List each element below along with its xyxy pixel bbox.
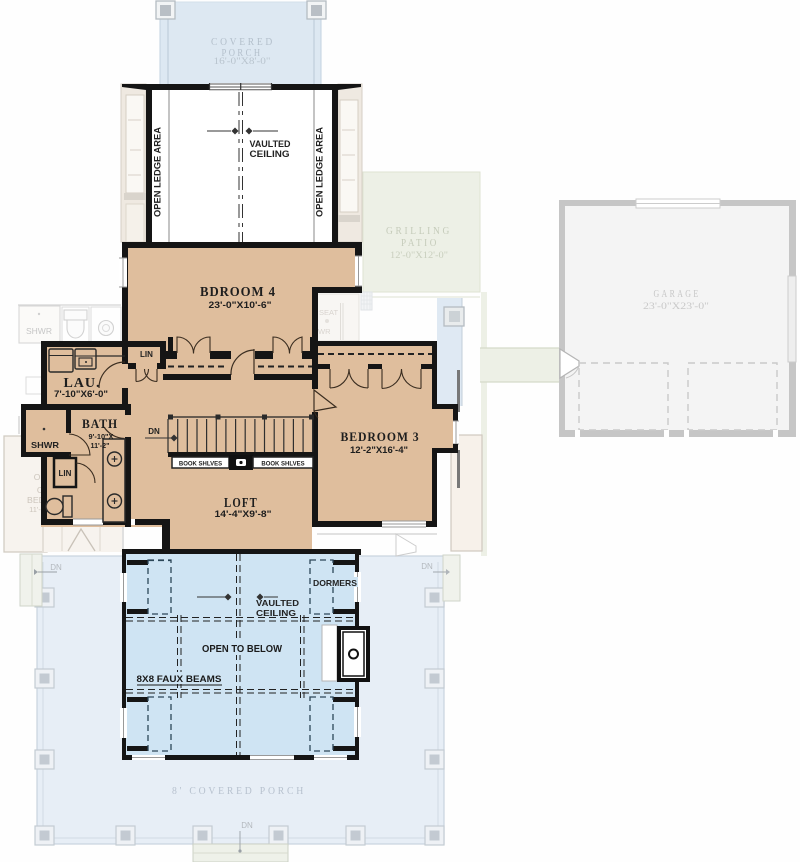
- svg-text:OPEN TO BELOW: OPEN TO BELOW: [202, 644, 283, 655]
- svg-text:VAULTED: VAULTED: [256, 598, 299, 608]
- svg-text:SHWR: SHWR: [26, 326, 52, 336]
- svg-text:14'-4"X9'-8": 14'-4"X9'-8": [215, 509, 272, 519]
- svg-text:DN: DN: [50, 563, 62, 572]
- svg-text:PATIO: PATIO: [401, 238, 439, 249]
- svg-text:23'-0"X10'-6": 23'-0"X10'-6": [209, 300, 272, 310]
- svg-text:CEILING: CEILING: [256, 608, 296, 618]
- svg-text:LIN: LIN: [59, 469, 72, 478]
- svg-text:WR: WR: [318, 327, 331, 336]
- svg-text:12'-0"X12'-0": 12'-0"X12'-0": [390, 250, 448, 260]
- svg-text:DN: DN: [148, 427, 160, 436]
- svg-text:SHWR: SHWR: [31, 440, 59, 450]
- svg-text:O: O: [34, 472, 41, 482]
- svg-text:LIN: LIN: [140, 350, 153, 359]
- svg-text:DORMERS: DORMERS: [313, 578, 357, 588]
- svg-text:GRILLING: GRILLING: [386, 226, 452, 237]
- svg-text:BATH: BATH: [82, 416, 118, 431]
- svg-text:8X8 FAUX BEAMS: 8X8 FAUX BEAMS: [137, 674, 222, 684]
- svg-text:DN: DN: [241, 821, 253, 830]
- svg-text:BDROOM 4: BDROOM 4: [200, 284, 276, 299]
- svg-text:11'-2": 11'-2": [91, 443, 110, 450]
- svg-text:GARAGE: GARAGE: [654, 289, 701, 300]
- svg-text:7'-10"X6'-0": 7'-10"X6'-0": [54, 389, 108, 400]
- svg-text:OPEN LEDGE AREA: OPEN LEDGE AREA: [153, 126, 163, 217]
- svg-text:BEDROOM 3: BEDROOM 3: [341, 429, 420, 444]
- svg-text:9'-10"X: 9'-10"X: [89, 434, 114, 441]
- svg-text:12'-2"X16'-4": 12'-2"X16'-4": [350, 445, 408, 456]
- svg-text:SEAT: SEAT: [319, 308, 338, 317]
- svg-text:16'-0"X8'-0": 16'-0"X8'-0": [214, 56, 271, 66]
- svg-text:8' COVERED PORCH: 8' COVERED PORCH: [172, 786, 306, 797]
- svg-text:OPEN LEDGE AREA: OPEN LEDGE AREA: [315, 126, 325, 217]
- svg-text:23'-0"X23'-0": 23'-0"X23'-0": [643, 302, 709, 312]
- svg-text:BOOK SHLVES: BOOK SHLVES: [179, 462, 222, 468]
- svg-text:BOOK SHLVES: BOOK SHLVES: [261, 462, 304, 468]
- svg-text:CEILING: CEILING: [250, 149, 290, 160]
- svg-text:COVERED: COVERED: [211, 37, 275, 48]
- svg-text:DN: DN: [421, 562, 433, 571]
- svg-text:11'-: 11'-: [29, 505, 41, 514]
